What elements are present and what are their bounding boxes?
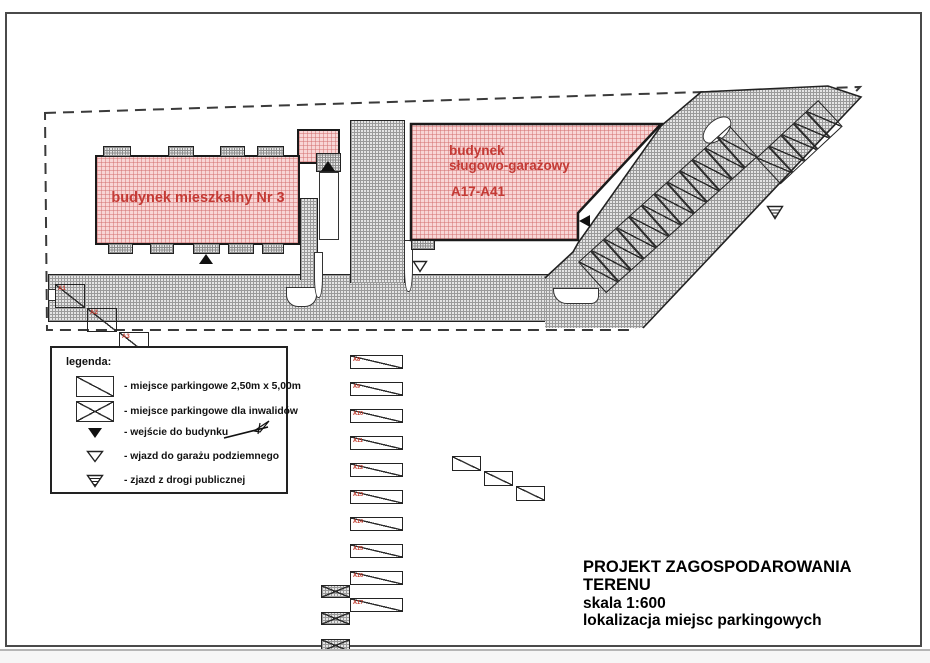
parking-space: A16 (350, 571, 403, 585)
parking-space: A9 (350, 382, 403, 396)
building-entrance-icon (88, 428, 102, 438)
parking-space: A8 (350, 355, 403, 369)
parking-space-number: A10 (353, 411, 363, 417)
legend-item-label: - miejsce parkingowe dla inwalidów (124, 406, 298, 417)
title-block: PROJEKT ZAGOSPODAROWANIA TERENU skala 1:… (583, 558, 918, 630)
page-bottom-shadow (0, 649, 930, 663)
parking-space: A15 (350, 544, 403, 558)
parking-space-number: A11 (353, 438, 363, 444)
disabled-parking-space (321, 612, 350, 625)
road-middle-strip (350, 120, 405, 283)
drawing-subtitle: lokalizacja miejsc parkingowych (583, 612, 918, 629)
disabled-parking-space (321, 585, 350, 598)
parking-space-number: A16 (353, 573, 363, 579)
parking-space-number: A17 (353, 600, 363, 606)
parking-space: A2 (87, 308, 117, 332)
legend-box: legenda: - miejsce parkingowe 2,50m x 5,… (50, 346, 288, 494)
building-entrance-icon (321, 161, 335, 171)
parking-space: A11 (350, 436, 403, 450)
underground-garage-entrance-icon (86, 450, 104, 463)
road-island (319, 172, 339, 240)
balcony (220, 146, 245, 157)
building-garage-label: budynek (449, 143, 505, 158)
parking-space-number: A9 (353, 384, 360, 390)
legend-item-label: - miejsce parkingowe 2,50m x 5,00m (124, 381, 301, 392)
public-road-exit-icon (86, 474, 104, 488)
parking-space-number: A15 (353, 546, 363, 552)
parking-space (484, 471, 513, 486)
balcony (411, 240, 435, 250)
building-garage-label: sługowo-garażowy (449, 158, 570, 173)
building-entrance-icon (579, 215, 590, 227)
parking-space-number: A3 (122, 334, 130, 340)
building-garage-range-label: A17-A41 (451, 184, 505, 199)
parking-space (516, 486, 545, 501)
parking-space: A17 (350, 598, 403, 612)
road-island (553, 288, 599, 304)
parking-space: A1 (55, 284, 85, 308)
legend-item-label: - wjazd do garażu podziemnego (124, 451, 279, 462)
legend-item-label: - zjazd z drogi publicznej (124, 475, 245, 486)
north-arrow-icon (222, 418, 274, 442)
drawing-scale: skala 1:600 (583, 595, 918, 612)
building-entrance-icon (199, 254, 213, 264)
road-island (286, 287, 317, 307)
parking-space-number: A2 (90, 310, 98, 316)
balcony (262, 243, 284, 254)
parking-space: A10 (350, 409, 403, 423)
parking-space-number: A8 (353, 357, 360, 363)
balcony (150, 243, 174, 254)
building-residential-label: budynek mieszkalny Nr 3 (103, 190, 293, 206)
site-plan-page: A1 A2 A3 A4 A5 A6 A7 A8 A9 A10 A11 A12 A… (0, 0, 930, 663)
balcony (193, 243, 220, 254)
balcony (168, 146, 194, 157)
balcony (228, 243, 254, 254)
disabled-parking-icon (76, 401, 114, 422)
parking-space-number: A1 (58, 286, 66, 292)
legend-item-label: - wejście do budynku (124, 427, 228, 438)
parking-space (452, 456, 481, 471)
balcony (108, 243, 133, 254)
balcony (103, 146, 131, 157)
parking-space: A13 (350, 490, 403, 504)
drawing-title: PROJEKT ZAGOSPODAROWANIA TERENU (583, 558, 918, 595)
parking-space-number: A14 (353, 519, 363, 525)
parking-space-number: A13 (353, 492, 363, 498)
parking-space-icon (76, 376, 114, 397)
legend-title: legenda: (66, 356, 111, 368)
parking-space: A14 (350, 517, 403, 531)
parking-space: A12 (350, 463, 403, 477)
road-island (314, 252, 323, 298)
balcony (257, 146, 284, 157)
parking-space-number: A12 (353, 465, 363, 471)
